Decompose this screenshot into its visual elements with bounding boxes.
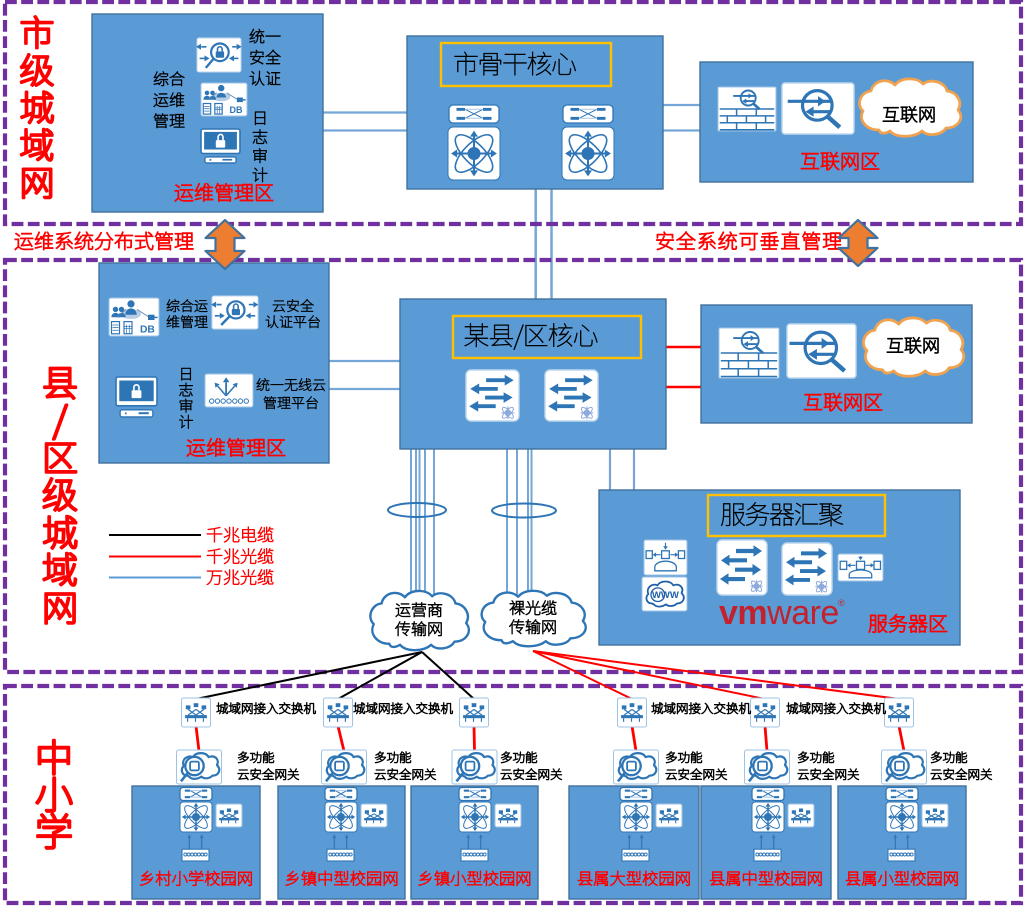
svg-text:®: ® bbox=[838, 598, 845, 608]
svg-text:WWW: WWW bbox=[652, 590, 679, 601]
svg-text:DB: DB bbox=[230, 105, 243, 115]
svg-text:DB: DB bbox=[140, 325, 155, 336]
svg-text:vmware: vmware bbox=[719, 594, 839, 632]
